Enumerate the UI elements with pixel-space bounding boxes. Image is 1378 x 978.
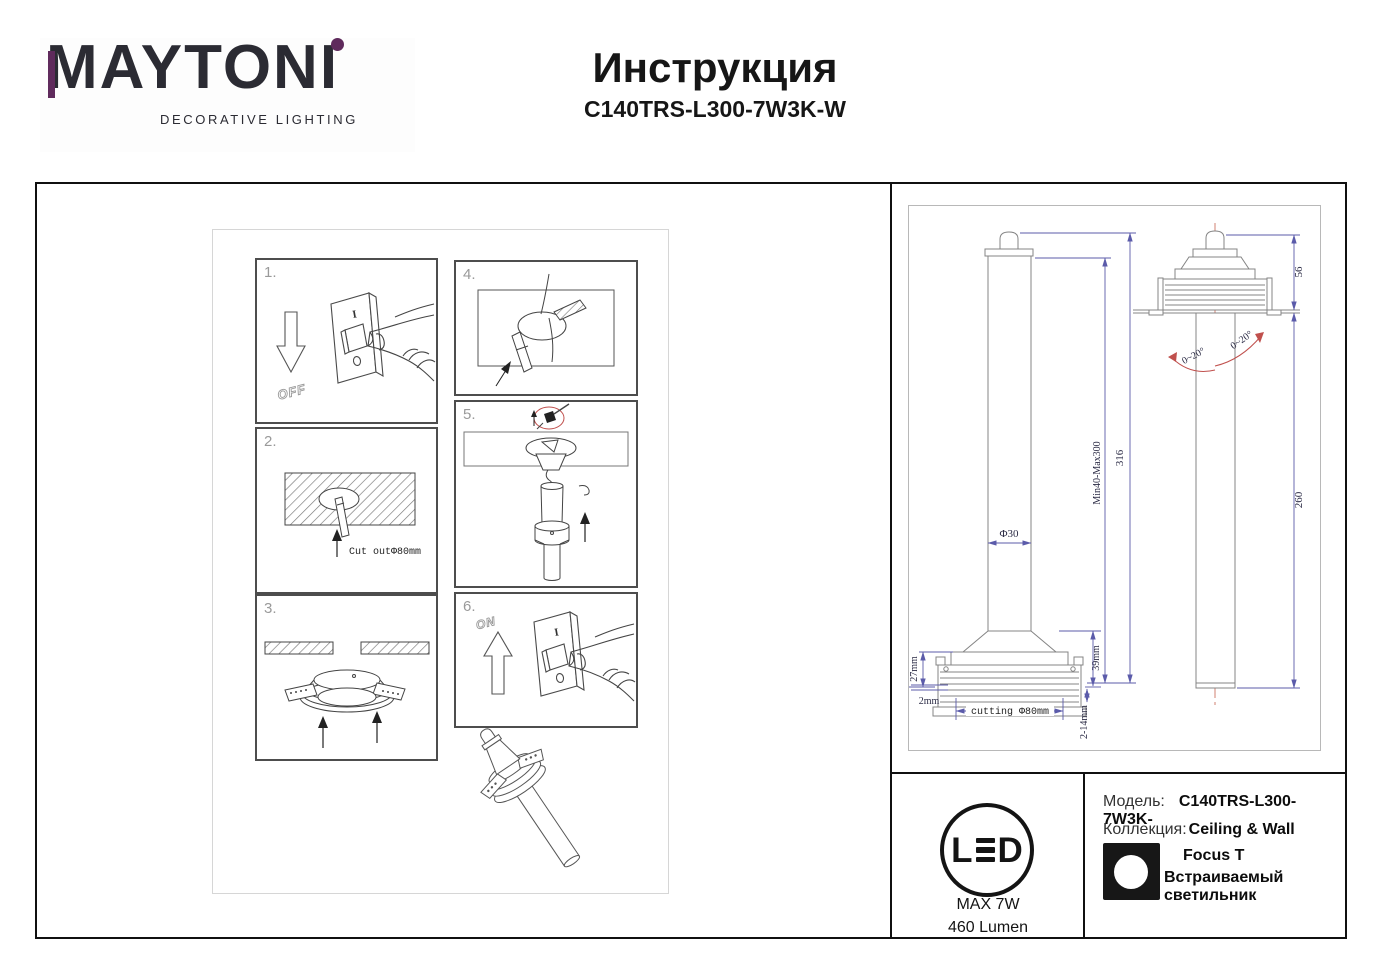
finished-lamp-drawing [445,724,669,926]
brand-logo-subtitle: DECORATIVE LIGHTING [160,112,358,127]
step-5-illustration-connect-lamp [456,402,636,586]
dim-height-right: 39mm [1091,645,1102,671]
hook-wire [579,486,589,496]
brand-logo-purple-dot-icon [331,38,344,51]
spot-hole-icon [1114,855,1148,889]
ceiling-section-bars [265,642,429,654]
instruction-sheet: MAYTONI DECORATIVE LIGHTING Инструкция C… [0,0,1378,978]
collection-row: Коллекция:Ceiling & Wall [1103,821,1295,839]
front-view-outline [933,232,1086,716]
dim-lip: 2mm [919,696,940,707]
off-label: OFF [276,381,308,403]
dim-cutting: cutting Φ80mm [971,706,1049,718]
step-3-number: 3. [264,600,277,617]
on-label: ON [474,614,497,632]
footer-divider [892,772,1345,774]
light-switch [534,612,584,696]
technical-drawing-panel: Φ30 Min40-Max300 316 27mm 2mm cutting Φ8… [908,205,1321,751]
side-view-outline [1133,231,1300,688]
step-5-box: 5. [454,400,638,588]
step-6-number: 6. [463,598,476,615]
step-2-number: 2. [264,433,277,450]
lumen-label: 460 Lumen [892,919,1084,937]
family-type: Встраиваемый светильник [1164,869,1345,905]
led-letter-l: L [951,833,972,868]
step-3-box: 3. [255,594,438,761]
mounting-ring-drawing [285,670,405,712]
step-2-illustration-cut-hole: Cut outΦ80mm [257,429,436,592]
hole-and-wire-drawing [478,274,614,372]
step-4-box: 4. [454,260,638,396]
ceiling-cutout-drawing [285,473,415,537]
step-1-number: 1. [264,264,277,281]
brand-logo-text: MAYTONI [46,32,339,103]
off-arrow-icon [277,312,305,372]
brand-logo-purple-bar [48,51,55,98]
step-6-box: 6. ON I [454,592,638,728]
up-arrow-icon [580,512,590,542]
dim-above-ceiling: 56 [1293,266,1305,278]
step-4-illustration-pull-wire [456,262,636,394]
step-4-number: 4. [463,266,476,283]
dim-adjust-range: Min40-Max300 [1092,441,1103,504]
up-arrows-icon [318,711,382,748]
step-6-illustration-switch-on: ON I [456,594,636,726]
dim-height-left: 27mm [909,656,920,682]
recessed-spot-icon [1103,843,1160,900]
page-model-code: C140TRS-L300-7W3K-W [480,96,950,123]
page-title: Инструкция [480,44,950,92]
dim-tube-diameter: Φ30 [999,528,1019,540]
step-2-box: 2. Cut outΦ80mm [255,427,438,594]
canopy-drawing [526,438,576,488]
collection-value: Ceiling & Wall [1189,821,1295,838]
title-block: Инструкция C140TRS-L300-7W3K-W [480,44,950,123]
step-3-illustration-insert-ring [257,596,436,759]
tilted-lamp [453,724,604,884]
connector-highlight [531,404,569,429]
dim-ceiling-range: 2-14mm [1079,705,1090,739]
led-letter-d: D [998,833,1023,868]
light-switch [331,293,383,383]
on-arrow-icon [484,632,512,694]
step-1-box: 1. OFF I [255,258,438,424]
dim-total-height: 316 [1114,449,1126,466]
max-power-label: MAX 7W [892,896,1084,914]
led-letter-e-bars [976,838,995,863]
step-5-number: 5. [463,406,476,423]
dim-below-ceiling: 260 [1293,491,1305,508]
brand-logo: MAYTONI DECORATIVE LIGHTING [40,38,415,152]
step-1-illustration-switch-off: OFF I [257,260,436,422]
up-arrow-icon [332,529,342,557]
cutout-note: Cut outΦ80mm [349,547,421,558]
main-frame: 1. OFF I [35,182,1347,939]
vertical-divider [890,184,892,937]
family-name: Focus T [1183,847,1244,865]
collection-label: Коллекция: [1103,821,1187,838]
model-label: Модель: [1103,793,1165,810]
lamp-body-drawing [535,483,569,581]
led-logo: L D [940,803,1034,897]
dimension-drawings: Φ30 Min40-Max300 316 27mm 2mm cutting Φ8… [909,206,1320,750]
